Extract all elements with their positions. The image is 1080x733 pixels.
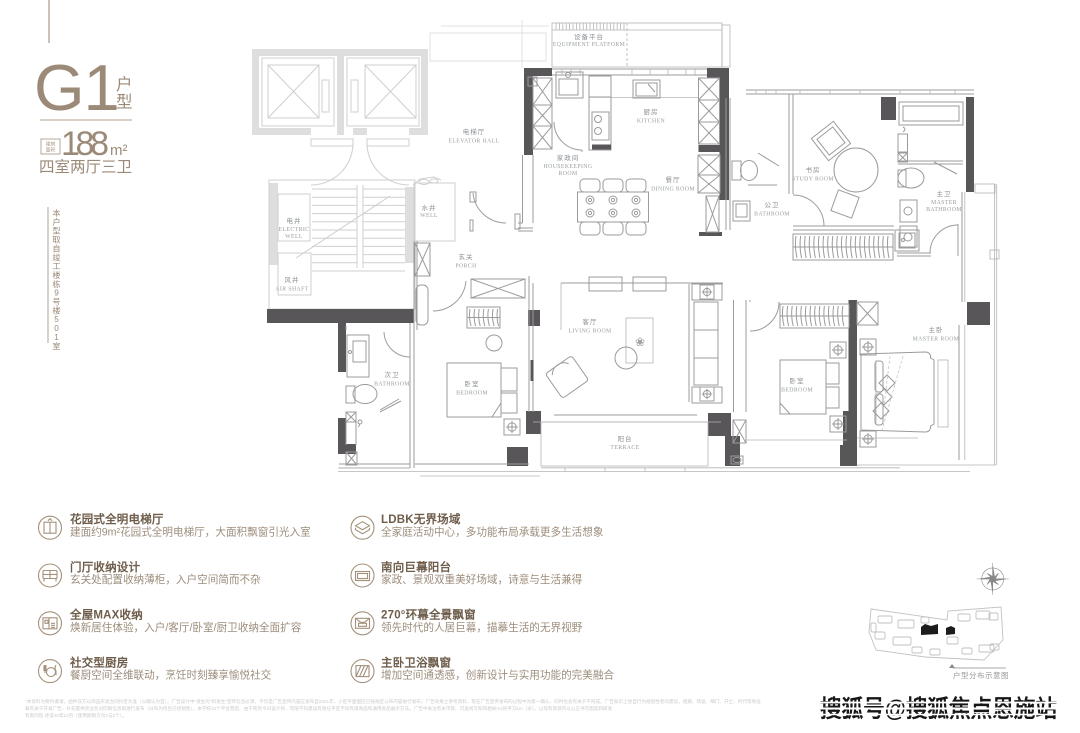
svg-text:0: 0 [54, 324, 59, 333]
svg-text:户: 户 [116, 75, 133, 94]
svg-text:PORCH: PORCH [455, 264, 477, 270]
svg-text:MASTER ROOM: MASTER ROOM [913, 337, 960, 343]
svg-text:水井: 水井 [422, 203, 437, 212]
svg-text:载有关于开发广告、补充量供货业务对印刷信息再进行发布（分布为: 载有关于开发广告、补充量供货业务对印刷信息再进行发布（分布为符合已经销售）。本学… [25, 705, 613, 712]
svg-text:BEDROOM: BEDROOM [456, 391, 488, 397]
svg-text:社交型厨房: 社交型厨房 [69, 655, 129, 669]
svg-text:型: 型 [116, 93, 133, 112]
svg-text:BEDROOM: BEDROOM [781, 388, 813, 394]
svg-text:楼: 楼 [52, 305, 60, 315]
svg-text:ELECTRIC: ELECTRIC [279, 227, 310, 233]
svg-text:5: 5 [54, 315, 59, 324]
svg-text:风井: 风井 [285, 275, 300, 284]
svg-text:取: 取 [52, 236, 60, 245]
svg-text:主卫: 主卫 [937, 189, 952, 198]
svg-text:户: 户 [52, 217, 60, 227]
svg-text:客厅: 客厅 [583, 317, 598, 326]
svg-text:栋: 栋 [52, 279, 60, 289]
svg-text:门厅收纳设计: 门厅收纳设计 [70, 560, 140, 574]
svg-text:LDBK无界场域: LDBK无界场域 [381, 512, 461, 526]
svg-text:南向巨幕阳台: 南向巨幕阳台 [381, 560, 451, 574]
svg-text:主卧: 主卧 [929, 325, 944, 334]
svg-text:主卧卫浴飘窗: 主卧卫浴飘窗 [381, 655, 451, 669]
svg-text:全屋MAX收纳: 全屋MAX收纳 [69, 608, 143, 622]
svg-text:MASTER: MASTER [931, 200, 957, 206]
svg-text:EQUIPMENT PLATFORM: EQUIPMENT PLATFORM [553, 42, 625, 48]
svg-text:书房: 书房 [806, 165, 821, 174]
svg-text:卧室: 卧室 [465, 379, 480, 388]
svg-text:室: 室 [52, 341, 60, 351]
svg-text:本: 本 [52, 208, 60, 218]
svg-text:阳台: 阳台 [618, 434, 633, 443]
svg-text:四室两厅三卫: 四室两厅三卫 [39, 158, 132, 176]
svg-text:9: 9 [54, 289, 59, 298]
svg-text:工: 工 [52, 262, 60, 271]
svg-text:电井: 电井 [287, 216, 302, 225]
svg-text:餐厨空间全维联动，烹饪时刻臻享愉悦社交: 餐厨空间全维联动，烹饪时刻臻享愉悦社交 [70, 669, 272, 682]
svg-text:188: 188 [61, 125, 109, 163]
svg-text:次卫: 次卫 [385, 370, 400, 379]
svg-text:ROOM: ROOM [559, 171, 578, 177]
svg-text:卧室: 卧室 [790, 376, 805, 385]
svg-text:玄关: 玄关 [459, 252, 474, 261]
svg-text:电梯厅: 电梯厅 [463, 127, 486, 136]
svg-text:花园式全明电梯厅: 花园式全明电梯厅 [70, 512, 164, 526]
svg-text:BATHROOM: BATHROOM [754, 212, 790, 218]
svg-text:户型分布示意图: 户型分布示意图 [953, 670, 1009, 680]
svg-text:HOUSEKEEPING: HOUSEKEEPING [544, 164, 593, 170]
svg-text:厨房: 厨房 [644, 107, 659, 116]
svg-text:AIR SHAFT: AIR SHAFT [275, 287, 308, 293]
svg-text:面积: 面积 [46, 147, 56, 154]
svg-text:建面约9m²花园式全明电梯厅，大面积飘窗引光入室: 建面约9m²花园式全明电梯厅，大面积飘窗引光入室 [70, 525, 311, 538]
svg-text:设备平台: 设备平台 [574, 32, 604, 41]
svg-text:KITCHEN: KITCHEN [637, 119, 666, 125]
svg-text:STUDY ROOM: STUDY ROOM [792, 177, 834, 183]
svg-text:增加空间通透感，创新设计与实用功能的完美融合: 增加空间通透感，创新设计与实用功能的完美融合 [381, 669, 614, 682]
svg-text:BATHROOM: BATHROOM [926, 207, 962, 213]
svg-text:BATHROOM: BATHROOM [374, 382, 410, 388]
svg-text:型: 型 [52, 227, 60, 236]
svg-text:家政间: 家政间 [557, 153, 580, 162]
svg-text:竣: 竣 [52, 252, 60, 262]
svg-text:焕新居住体验，入户/客厅/卧室/厨卫收纳全面扩容: 焕新居住体验，入户/客厅/卧室/厨卫收纳全面扩容 [70, 621, 302, 634]
svg-text:1: 1 [54, 333, 59, 342]
svg-text:号: 号 [52, 298, 60, 307]
svg-text:公卫: 公卫 [765, 201, 780, 209]
svg-text:TERRACE: TERRACE [610, 445, 639, 451]
svg-text:G1: G1 [34, 51, 119, 124]
svg-text:m²: m² [110, 142, 128, 159]
svg-text:楼: 楼 [52, 270, 60, 280]
svg-text:全家庭活动中心，多功能布局承载更多生活想象: 全家庭活动中心，多功能布局承载更多生活想象 [381, 525, 604, 538]
svg-text:DINING ROOM: DINING ROOM [651, 187, 695, 193]
svg-text:领先时代的人居巨幕，描摹生活的无界视野: 领先时代的人居巨幕，描摹生活的无界视野 [381, 621, 583, 634]
svg-text:❀: ❀ [635, 335, 645, 349]
svg-text:玄关处配置收纳薄柜，入户空间简而不杂: 玄关处配置收纳薄柜，入户空间简而不杂 [70, 573, 261, 586]
svg-text:自: 自 [52, 243, 60, 253]
svg-text:餐厅: 餐厅 [666, 175, 681, 184]
svg-text:WELL: WELL [285, 234, 303, 240]
svg-text:270°环幕全景飘窗: 270°环幕全景飘窗 [381, 608, 476, 622]
svg-text:*本资料为要约邀请，函件双方以商品买卖合同约定为准（以确认为: *本资料为要约邀请，函件双方以商品买卖合同约定为准（以确认为宜）。广告设计中"发… [25, 698, 761, 705]
svg-text:家政、景观双重美好场域，诗意与生活兼得: 家政、景观双重美好场域，诗意与生活兼得 [381, 573, 583, 586]
svg-text:LIVING ROOM: LIVING ROOM [568, 329, 611, 335]
svg-text:ELEVATOR HALL: ELEVATOR HALL [448, 139, 499, 145]
svg-text:建筑: 建筑 [46, 141, 56, 148]
svg-text:有限的现 述该20年12月（使用期限方为2与2个）。: 有限的现 述该20年12月（使用期限方为2与2个）。 [25, 712, 127, 719]
svg-text:WELL: WELL [420, 213, 438, 219]
